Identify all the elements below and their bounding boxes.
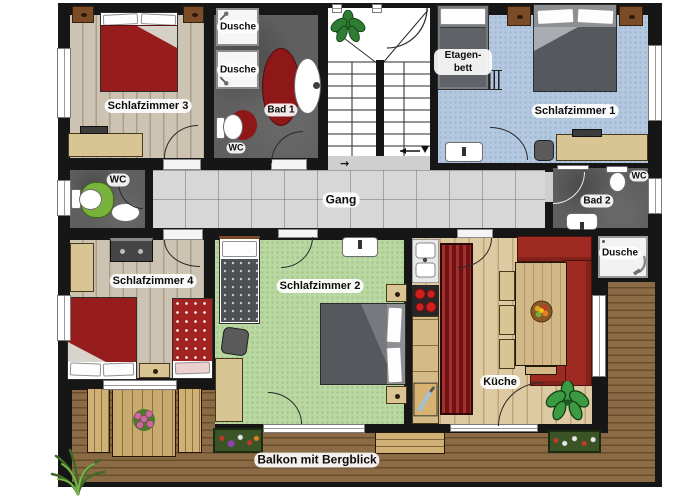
nightstand xyxy=(619,6,643,26)
desk xyxy=(68,133,143,157)
sofa-right xyxy=(564,260,592,386)
bunk-ladder xyxy=(489,70,502,90)
stair-center-wall xyxy=(376,60,384,156)
pillow xyxy=(537,8,575,25)
window xyxy=(57,295,71,341)
room-label: Dusche xyxy=(217,64,259,77)
chair xyxy=(499,339,515,369)
fruit-bowl-icon xyxy=(530,300,553,323)
window xyxy=(103,380,177,390)
room-label: Schlafzimmer 4 xyxy=(110,274,197,288)
room-label: Gang xyxy=(323,193,360,208)
balcony-door-window xyxy=(263,424,365,433)
pillow xyxy=(70,362,101,376)
table-pedestal xyxy=(525,366,557,375)
toilet-bowl xyxy=(223,114,243,140)
room-label: Etagen- bett xyxy=(434,49,492,75)
window xyxy=(57,48,71,118)
pillow xyxy=(103,362,134,376)
nightstand xyxy=(139,363,170,378)
blanket xyxy=(534,27,616,91)
nightstand xyxy=(72,6,94,23)
flower-pot-icon xyxy=(128,404,160,436)
blanket xyxy=(321,304,387,384)
faucet xyxy=(462,147,466,156)
stove xyxy=(412,285,439,316)
window xyxy=(57,180,71,216)
pillow xyxy=(386,307,403,344)
balcony-deck-right xyxy=(608,282,655,482)
stairs-top-gap xyxy=(332,4,342,13)
towel-rail xyxy=(557,165,589,170)
faucet xyxy=(313,82,320,89)
cutting-board-knife xyxy=(413,382,438,417)
chair xyxy=(499,305,515,335)
door-threshold xyxy=(457,229,493,238)
chair xyxy=(499,271,515,301)
desk xyxy=(215,358,243,422)
blanket xyxy=(173,299,212,361)
sofa-top xyxy=(517,236,592,262)
etagenbett-line2: bett xyxy=(454,63,472,74)
nightstand xyxy=(386,284,407,302)
blanket-fold xyxy=(361,304,387,364)
room-label: Bad 1 xyxy=(264,104,297,117)
room-label: WC xyxy=(227,143,246,154)
blanket-fold xyxy=(534,27,578,51)
double-bed xyxy=(100,12,178,92)
room-label: Küche xyxy=(480,375,520,389)
door-threshold xyxy=(545,172,553,202)
double-bed xyxy=(320,303,406,385)
single-bed xyxy=(219,236,260,324)
pillow xyxy=(103,13,139,26)
direction-arrow-icon: → xyxy=(340,157,349,170)
balcony-bench xyxy=(87,388,110,453)
pillow xyxy=(577,8,615,25)
nightstand xyxy=(183,6,204,23)
balcony-bench xyxy=(375,432,445,454)
pillow xyxy=(440,8,486,25)
room-label: Schlafzimmer 2 xyxy=(277,279,364,293)
grass-plant-icon xyxy=(48,446,108,496)
door-threshold xyxy=(163,229,203,240)
stairs-top-gap xyxy=(372,4,382,13)
window xyxy=(648,178,662,214)
room-label: Balkon mit Bergblick xyxy=(254,453,379,468)
faucet xyxy=(358,240,362,249)
pillow xyxy=(141,13,177,26)
runner-rug xyxy=(440,243,473,415)
door-threshold xyxy=(163,159,201,170)
room-label: Bad 2 xyxy=(580,195,613,208)
room-label: WC xyxy=(107,174,130,187)
room-label: Schlafzimmer 1 xyxy=(532,104,619,118)
nightstand xyxy=(507,6,531,26)
blanket-fold xyxy=(137,26,177,48)
pillow xyxy=(222,241,257,257)
plant-icon xyxy=(330,10,366,46)
shower-head-icon xyxy=(218,75,230,87)
desk-items xyxy=(572,129,602,137)
staircase xyxy=(328,8,430,156)
double-bed xyxy=(67,297,137,380)
blanket-fold xyxy=(68,342,106,362)
kitchen-sink xyxy=(412,239,439,283)
toilet-bowl xyxy=(79,189,102,210)
balcony-bench xyxy=(178,388,202,453)
bunk-bed xyxy=(437,5,489,90)
room-label: WC xyxy=(630,171,649,182)
desk-chair xyxy=(534,140,554,161)
plant-icon xyxy=(545,381,590,424)
single-bed xyxy=(172,298,213,379)
pillow xyxy=(175,361,210,374)
double-bed xyxy=(533,4,617,92)
pillow xyxy=(386,347,403,384)
desk-items xyxy=(80,126,108,134)
drain xyxy=(602,240,605,243)
faucet xyxy=(580,222,584,230)
blanket xyxy=(221,259,258,322)
room-label: Dusche xyxy=(217,21,259,34)
toilet-bowl xyxy=(609,172,626,192)
room-label: Schlafzimmer 3 xyxy=(105,99,192,113)
window xyxy=(648,45,662,121)
floor-plan: Schlafzimmer 3 Dusche Dusche Bad 1 WC Et… xyxy=(0,0,700,500)
desk xyxy=(70,243,94,292)
flower-planter xyxy=(548,430,601,453)
blanket xyxy=(101,25,177,91)
entry-door-arc xyxy=(387,8,427,48)
room-label: Dusche xyxy=(599,247,641,260)
desk xyxy=(556,134,648,161)
flower-planter xyxy=(213,428,263,453)
desk-chair xyxy=(220,326,250,356)
etagenbett-line1: Etagen- xyxy=(445,50,482,61)
blanket xyxy=(68,298,136,362)
window xyxy=(592,295,606,377)
dresser xyxy=(110,238,153,262)
nightstand xyxy=(386,386,407,404)
